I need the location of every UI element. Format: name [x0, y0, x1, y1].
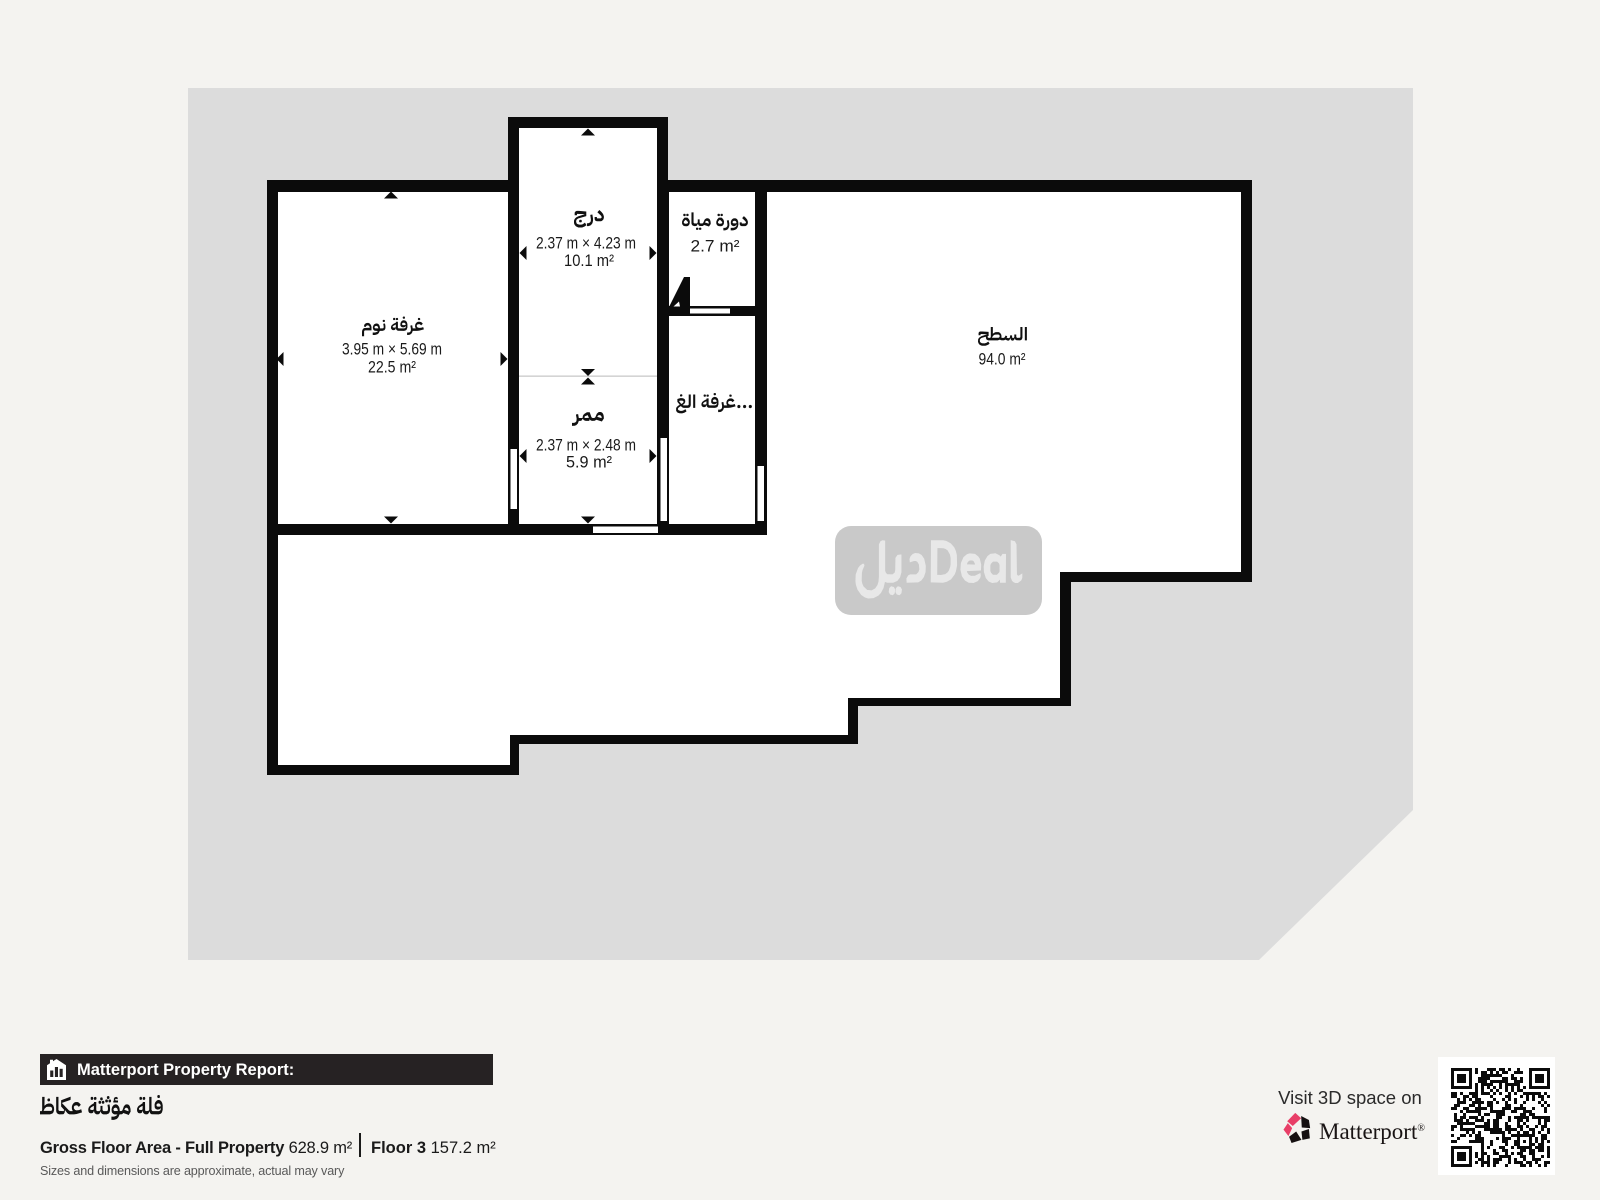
svg-text:5.9 m²: 5.9 m² [566, 454, 612, 472]
svg-text:2.37 m × 4.23 m: 2.37 m × 4.23 m [536, 235, 636, 253]
svg-text:2.7 m²: 2.7 m² [691, 238, 741, 256]
svg-text:10.1 m²: 10.1 m² [564, 252, 614, 270]
svg-text:22.5 m²: 22.5 m² [368, 359, 416, 377]
svg-text:2.37 m × 2.48 m: 2.37 m × 2.48 m [536, 437, 636, 455]
svg-text:3.95 m × 5.69 m: 3.95 m × 5.69 m [342, 341, 442, 359]
svg-text:94.0 m²: 94.0 m² [979, 351, 1026, 369]
